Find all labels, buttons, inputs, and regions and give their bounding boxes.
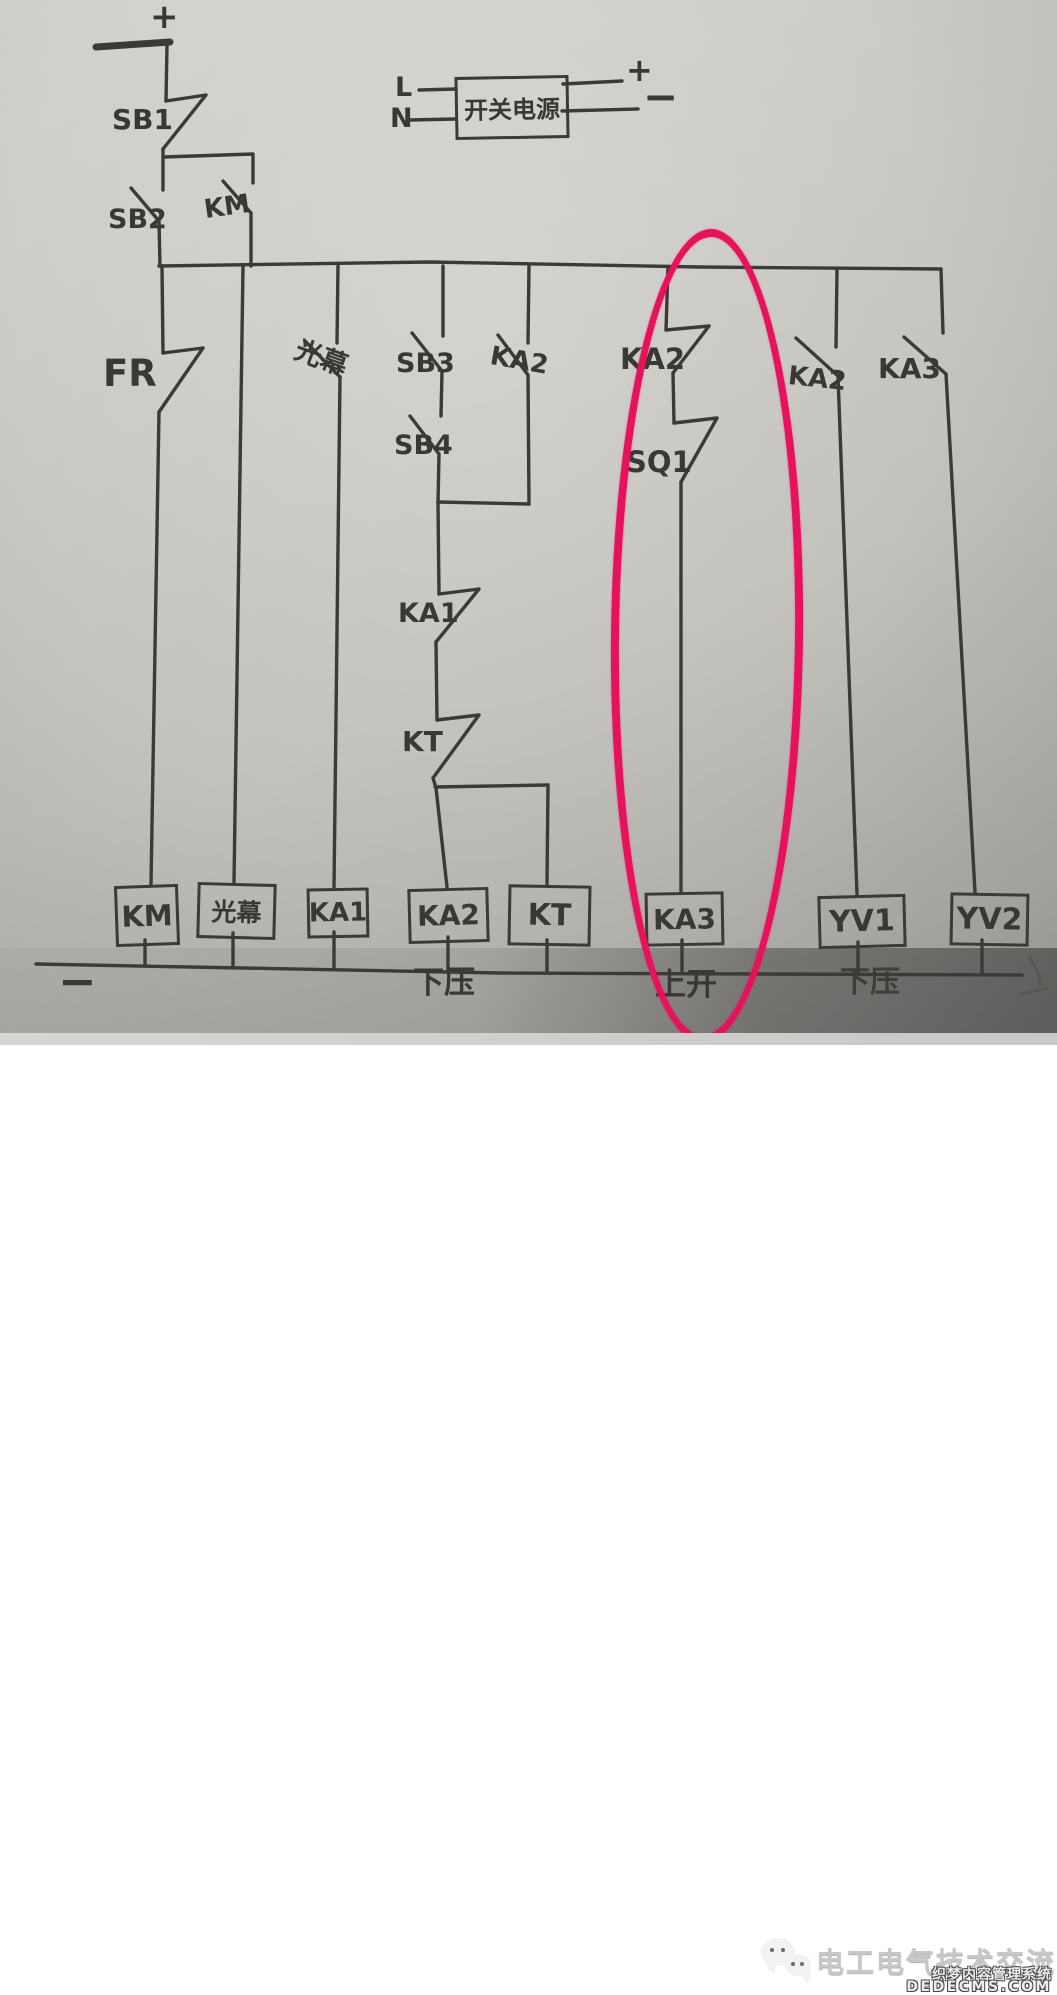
contact-label-ka2-right: KA2 (787, 363, 848, 395)
photo-bottom-edge-strip (0, 1033, 1057, 1045)
psu-minus-label: − (643, 76, 678, 118)
top-bus-wire (159, 262, 941, 269)
coil-kt: KT (507, 884, 591, 946)
light-curtain-power-branch-wire (234, 266, 243, 882)
switching-power-supply-label: 开关电源 (464, 89, 561, 126)
contact-label-sb4: SB4 (394, 432, 453, 459)
contact-label-fr: FR (103, 355, 157, 392)
coil-km: KM (114, 884, 180, 947)
coil-ka2: KA2 (407, 887, 489, 944)
neutral-n-label: N (390, 105, 413, 132)
wechat-eye (800, 1962, 804, 1966)
wechat-eye (781, 1948, 785, 1952)
wechat-icon (761, 1934, 813, 1986)
coil-ka2-label: KA2 (417, 898, 481, 933)
fr-km-branch-wires (151, 266, 203, 884)
coil-yv2-label: YV2 (956, 901, 1022, 937)
wechat-eye (770, 1948, 774, 1952)
wechat-eye (791, 1962, 795, 1966)
watermark-cms-domain: DEDECMS.COM (906, 1979, 1052, 1995)
coil-ka1-label: KA1 (309, 897, 368, 928)
hand-drawn-circuit-photo: + L N 开关电源 + − − SB1 SB2 KM FR 光幕 SB3 KA… (0, 0, 1057, 1045)
coil-light-curtain: 光幕 (196, 882, 276, 940)
coil-kt-label: KT (527, 898, 571, 934)
watermark-band: 电工电气技术交流 织梦内容管理系统 DEDECMS.COM (0, 960, 1057, 1040)
coil-light-curtain-label: 光幕 (211, 892, 262, 929)
contact-label-sb3: SB3 (396, 350, 455, 377)
line-l-label: L (395, 74, 412, 101)
contact-label-km: KM (202, 191, 251, 223)
contact-label-kt: KT (402, 728, 443, 756)
contact-label-ka1: KA1 (398, 600, 459, 627)
coil-yv1-label: YV1 (829, 903, 896, 940)
contact-label-sb1: SB1 (112, 106, 173, 134)
coil-yv1: YV1 (817, 894, 906, 949)
coil-ka1: KA1 (307, 887, 370, 938)
coil-yv2: YV2 (950, 892, 1030, 946)
wechat-small-bubble (785, 1954, 811, 1976)
coil-km-label: KM (121, 898, 173, 934)
plus-terminal-label: + (150, 0, 179, 34)
contact-label-sb2: SB2 (108, 206, 167, 233)
contact-label-ka3-right: KA3 (878, 355, 941, 383)
switching-power-supply-box: 开关电源 (454, 75, 569, 140)
